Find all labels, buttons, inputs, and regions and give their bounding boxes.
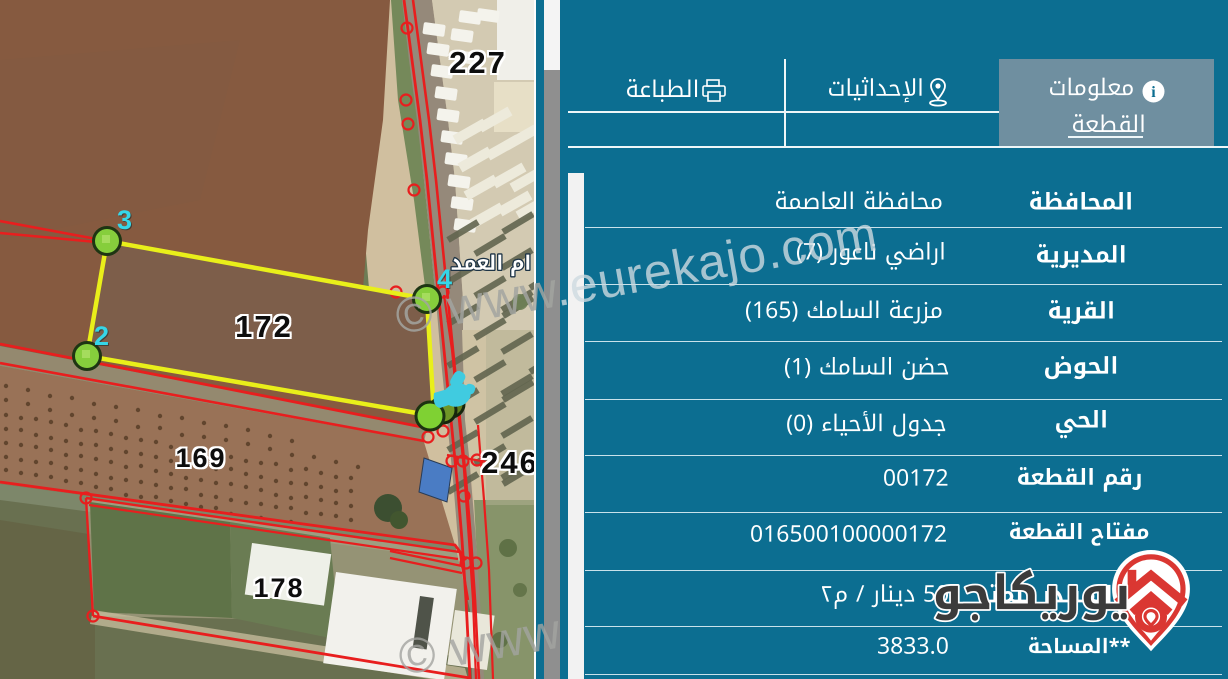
svg-text:i: i bbox=[1151, 84, 1156, 101]
